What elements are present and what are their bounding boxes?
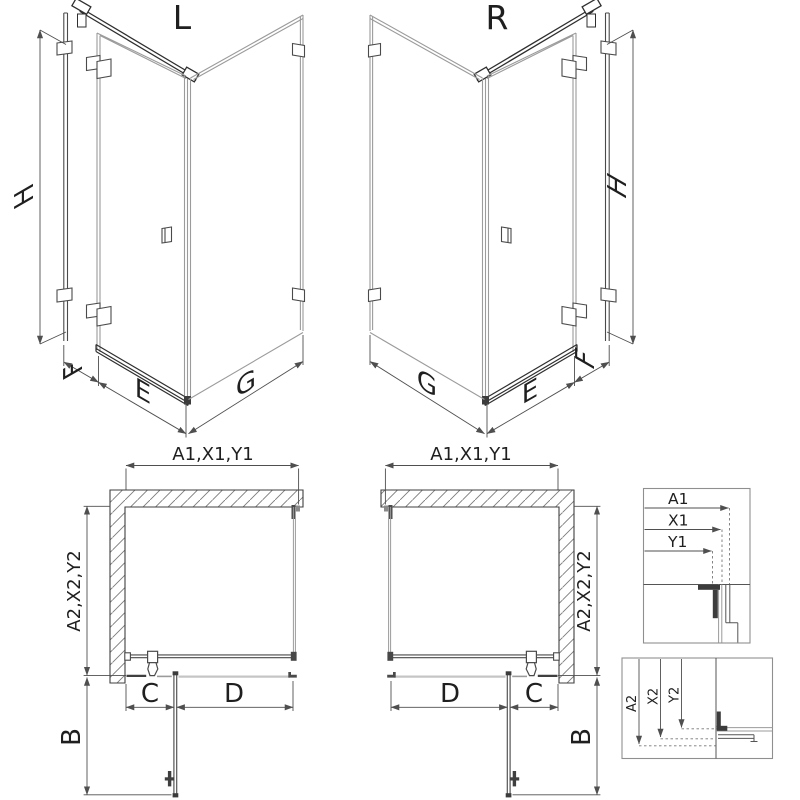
variant-label-right: R	[486, 0, 509, 37]
detail-box-width-border	[644, 489, 751, 644]
detail-box-width: A1 X1 Y1	[644, 489, 751, 644]
detail-depth-reference-dotted	[639, 729, 716, 746]
detail-a1-label: A1	[668, 490, 688, 508]
plan-right-door-swing-label: B	[567, 728, 597, 746]
diagram-svg: L R H F E G H F E G A1,X1,Y1 A2,X2,Y2 B …	[0, 0, 800, 800]
plan-left-door-swing-label: B	[57, 728, 87, 746]
plan-left-hinge-segment-label: C	[141, 679, 159, 709]
plan-right-hinge-segment-label: C	[525, 679, 543, 709]
plan-left-outer-depth-label: A2,X2,Y2	[64, 550, 85, 631]
shower-enclosure-technical-diagram: L R H F E G H F E G A1,X1,Y1 A2,X2,Y2 B …	[0, 0, 800, 800]
detail-a2-label: A2	[625, 695, 640, 712]
front-left-height-label: H	[9, 177, 40, 214]
plan-right-door-segment-label: D	[440, 679, 460, 709]
detail-box-depth: A2 X2 Y2	[622, 658, 773, 759]
plan-left-wall-hatch	[110, 490, 303, 683]
detail-box-depth-border	[622, 658, 773, 759]
detail-width-profile-section	[698, 585, 738, 643]
plan-right-wall-hatch	[381, 490, 574, 683]
detail-x2-label: X2	[647, 688, 662, 705]
front-right-height-label: H	[602, 167, 633, 204]
front-right-side-panel-label: G	[417, 362, 437, 404]
detail-y2-label: Y2	[668, 687, 683, 704]
plan-left-outer-width-label: A1,X1,Y1	[172, 444, 253, 465]
plan-right-outer-depth-label: A2,X2,Y2	[574, 550, 595, 631]
plan-left-door-segment-label: D	[224, 679, 244, 709]
front-left-side-panel-label: G	[236, 362, 256, 404]
detail-y1-label: Y1	[667, 533, 687, 551]
detail-depth-profile-section	[716, 712, 773, 742]
detail-width-reference-dotted	[713, 508, 730, 585]
plan-right-outer-width-label: A1,X1,Y1	[430, 444, 511, 465]
detail-x1-label: X1	[668, 512, 688, 530]
front-left-wall-offset-label: F	[58, 353, 89, 386]
variant-label-left: L	[173, 0, 192, 37]
